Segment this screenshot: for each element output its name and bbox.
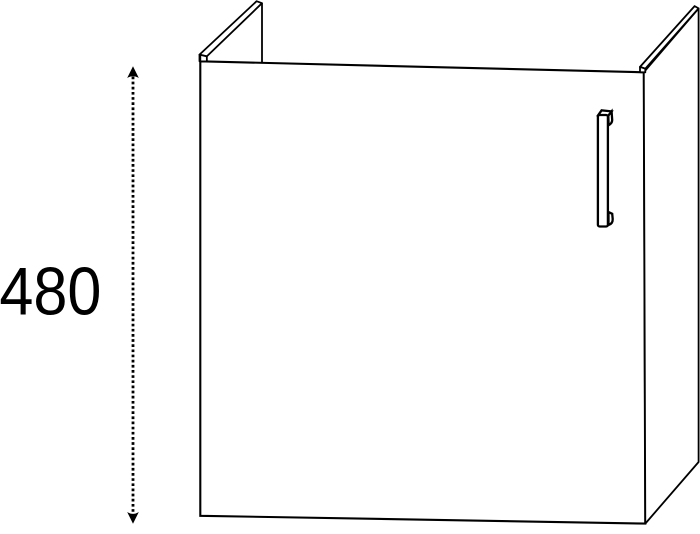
svg-text:480: 480 [0,255,101,330]
